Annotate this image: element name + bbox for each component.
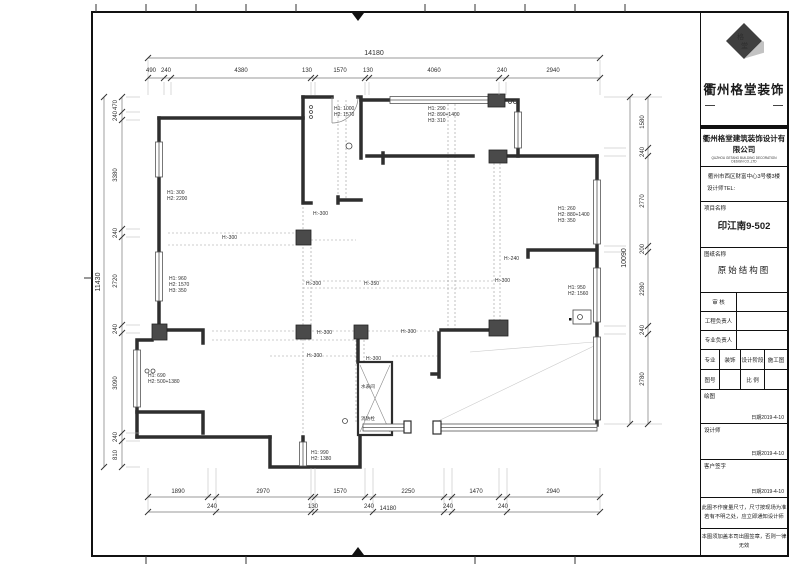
- note-box-2: 本图须加盖本司出图签章，否则一律无效: [701, 529, 787, 555]
- dim-text: 11430: [95, 272, 102, 291]
- dim-text: 2940: [546, 68, 560, 74]
- project-label: 项目名称: [704, 204, 726, 212]
- dim-text: 470: [113, 99, 119, 110]
- level-label: H:-300: [366, 356, 381, 362]
- window-right-1: [594, 180, 601, 244]
- dim-text: 10090: [621, 248, 628, 268]
- level-label: H:-350: [364, 281, 379, 287]
- win-label: H2: 500+1380: [148, 379, 180, 385]
- win-label: H2: 1560: [568, 291, 589, 297]
- wall-interior-bl: [137, 412, 203, 433]
- level-label: H:-300: [313, 211, 328, 217]
- dim-text: 1570: [333, 489, 347, 495]
- room-label: 消防栓: [361, 415, 375, 422]
- note-line: 若有不明之处，应立即通知设计师: [701, 513, 787, 522]
- brand-dash-left: [705, 105, 715, 106]
- wall-entry-stub: [338, 197, 361, 203]
- fold-ticks-top: [96, 4, 625, 12]
- level-labels: H:-300 H:-300 H:-300 H:-350 H:-300 H:-30…: [222, 211, 519, 362]
- dim-text: 4380: [234, 68, 248, 74]
- date-label: 日期: [751, 415, 761, 421]
- designer-date: 日期2019-4-10: [751, 450, 784, 457]
- sheet-frame: [84, 4, 788, 564]
- dim-text: 2720: [113, 274, 119, 288]
- client-sign-date: 日期2019-4-10: [751, 488, 784, 495]
- dim-text: 240: [113, 323, 119, 334]
- project-box: 项目名称 印江南9-502: [701, 202, 787, 248]
- win-label: H3: 310: [428, 118, 446, 124]
- dim-text: 14180: [380, 506, 397, 512]
- level-label: H:-300: [222, 235, 237, 241]
- window-right-2: [594, 268, 601, 322]
- room-label: 水表间: [361, 383, 375, 390]
- win-label: H3: 350: [558, 218, 576, 224]
- draw-box: 绘图 日期2019-4-10: [701, 390, 787, 424]
- column: [354, 325, 368, 339]
- company-address: 衢州市西区财富中心3号楼3楼: [701, 172, 787, 180]
- win-label: H2: 1570: [334, 112, 355, 118]
- window-left-1: [156, 142, 163, 177]
- column: [152, 324, 167, 340]
- scale-label: 比 例: [741, 370, 765, 389]
- win-label: H3: 350: [169, 288, 187, 294]
- level-label: H:-300: [306, 281, 321, 287]
- brand-dash-right: [773, 105, 783, 106]
- beam-grid-lines: [168, 100, 500, 440]
- dim-text: 240: [207, 504, 218, 510]
- stage-label: 设计阶段: [741, 350, 765, 369]
- designer-tel-label: 设计师TEL:: [707, 184, 787, 192]
- designer-label: 设计师: [704, 426, 721, 434]
- dim-text: 240: [113, 431, 119, 442]
- dim-text: 2940: [546, 489, 560, 495]
- dim-text: 1570: [333, 68, 347, 74]
- date-value: 2019-4-10: [761, 451, 784, 457]
- date-label: 日期: [751, 489, 761, 495]
- win-label: H2: 1380: [311, 456, 332, 462]
- svg-text:堂: 堂: [741, 41, 748, 50]
- client-sign-label: 客户签字: [704, 462, 726, 470]
- level-label: H:-300: [307, 353, 322, 359]
- dim-text: 130: [302, 68, 313, 74]
- dim-text: 2770: [640, 194, 646, 208]
- dim-text: 4060: [427, 68, 441, 74]
- column: [489, 150, 507, 163]
- scale-value: [765, 370, 787, 389]
- column: [489, 320, 508, 336]
- review-value: [737, 293, 787, 311]
- sheet-no-label: 图号: [701, 370, 720, 389]
- level-label: H:-240: [504, 256, 519, 262]
- window-left-3: [134, 350, 141, 407]
- address-section: 衢州市西区财富中心3号楼3楼 设计师TEL:: [701, 167, 787, 202]
- sheet-no-value: [720, 370, 741, 389]
- draw-date: 日期2019-4-10: [751, 414, 784, 421]
- dim-text: 810: [113, 449, 119, 460]
- wall-tr-room-bottom: [367, 153, 473, 163]
- window-right-3: [594, 337, 601, 420]
- pro-lead-value: [737, 331, 787, 349]
- company-logo: 格 堂: [724, 21, 764, 63]
- wall-kitchen-divider: [432, 333, 439, 377]
- dim-text: 240: [443, 504, 454, 510]
- dim-text: 130: [308, 504, 319, 510]
- stage-value: 施工图: [765, 350, 787, 369]
- level-label: H:-300: [317, 330, 332, 336]
- drawing-sheet: 14180 14180 11430 10090 490 240 4380 130…: [0, 0, 800, 565]
- column: [488, 94, 505, 107]
- dim-text: 240: [161, 68, 172, 74]
- discipline-value: 装饰: [720, 350, 741, 369]
- dim-text: 2250: [401, 489, 415, 495]
- company-name: 衢州格堂建筑装饰设计有限公司: [701, 133, 787, 155]
- wall-right-mid: [528, 250, 594, 257]
- dim-text: 1470: [469, 489, 483, 495]
- eng-lead-row: 工程负责人: [701, 312, 787, 331]
- center-mark-top-icon: [352, 13, 364, 21]
- dim-text: 240: [640, 146, 646, 157]
- window-balcony-band: [363, 421, 597, 434]
- dim-text: 240: [113, 110, 119, 121]
- pro-lead-label: 专业负责人: [701, 331, 737, 349]
- date-label: 日期: [751, 451, 761, 457]
- eng-lead-label: 工程负责人: [701, 312, 737, 330]
- discipline-row: 专业 装饰 设计阶段 施工图: [701, 350, 787, 370]
- designer-box: 设计师 日期2019-4-10: [701, 424, 787, 460]
- company-section: 衢州格堂建筑装饰设计有限公司 QUZHOU GETANG BUILDING DE…: [701, 129, 787, 167]
- review-label: 审 核: [701, 293, 737, 311]
- dim-text: 240: [498, 504, 509, 510]
- date-value: 2019-4-10: [761, 415, 784, 421]
- level-label: H:-300: [401, 329, 416, 335]
- dim-text: 240: [497, 68, 508, 74]
- dim-text: 3090: [113, 376, 119, 390]
- window-bath: [300, 442, 307, 466]
- dim-text: 2970: [256, 489, 270, 495]
- brand-name: 衢州格堂装饰: [701, 79, 787, 98]
- win-label: H2: 2200: [167, 196, 188, 202]
- dimension-segments: 490 240 4380 130 1570 130 4060 240 2940 …: [113, 68, 646, 510]
- balcony-diagonal-lines: [432, 342, 594, 424]
- dim-text: 240: [364, 504, 375, 510]
- draw-label: 绘图: [704, 392, 715, 400]
- discipline-label: 专业: [701, 350, 720, 369]
- sheet-no-row: 图号 比 例: [701, 370, 787, 390]
- level-label: H:-300: [495, 278, 510, 284]
- wall-corridor-left: [167, 330, 203, 343]
- client-sign-box[interactable]: 客户签字 日期2019-4-10: [701, 460, 787, 498]
- column: [296, 230, 311, 245]
- dim-text: 130: [363, 68, 374, 74]
- dim-text: 2280: [640, 282, 646, 296]
- column: [296, 325, 311, 339]
- date-value: 2019-4-10: [761, 489, 784, 495]
- window-entry-top: [390, 97, 488, 104]
- window-tr-vert: [515, 112, 522, 148]
- fold-ticks-bottom: [146, 556, 575, 564]
- dim-text: 240: [113, 227, 119, 238]
- dim-text: 14180: [364, 50, 384, 57]
- dim-text: 240: [640, 324, 646, 335]
- dim-text: 1580: [640, 115, 646, 129]
- dim-text: 2780: [640, 372, 646, 386]
- company-name-en: QUZHOU GETANG BUILDING DECORATION DESIGN…: [705, 156, 782, 163]
- drawing-box: 图纸名称 原始结构图: [701, 248, 787, 293]
- pro-lead-row: 专业负责人: [701, 331, 787, 350]
- logo-section: 格 堂 衢州格堂装饰: [701, 13, 787, 126]
- dim-text: 1890: [171, 489, 185, 495]
- note-line: 本图须加盖本司出图签章，否则一律无效: [701, 533, 787, 551]
- note-box-1: 此图不作度量尺寸，尺寸按现场为准 若有不明之处，应立即通知设计师: [701, 498, 787, 529]
- structural-columns: [152, 94, 508, 340]
- floor-plan-canvas: 14180 14180 11430 10090 490 240 4380 130…: [0, 0, 800, 565]
- dim-text: 3380: [113, 168, 119, 182]
- eng-lead-value: [737, 312, 787, 330]
- title-block: 格 堂 衢州格堂装饰 衢州格堂建筑装饰设计有限公司 QUZHOU GETANG …: [700, 12, 788, 556]
- window-left-2: [156, 252, 163, 301]
- note-line: 此图不作度量尺寸，尺寸按现场为准: [701, 504, 787, 513]
- dim-text: 490: [146, 68, 157, 74]
- center-mark-bottom-icon: [352, 547, 364, 555]
- review-row: 审 核: [701, 293, 787, 312]
- drawing-label: 图纸名称: [704, 250, 726, 258]
- svg-text:格: 格: [737, 32, 744, 41]
- dim-text: 200: [640, 243, 646, 254]
- ceiling-symbol: [346, 143, 352, 149]
